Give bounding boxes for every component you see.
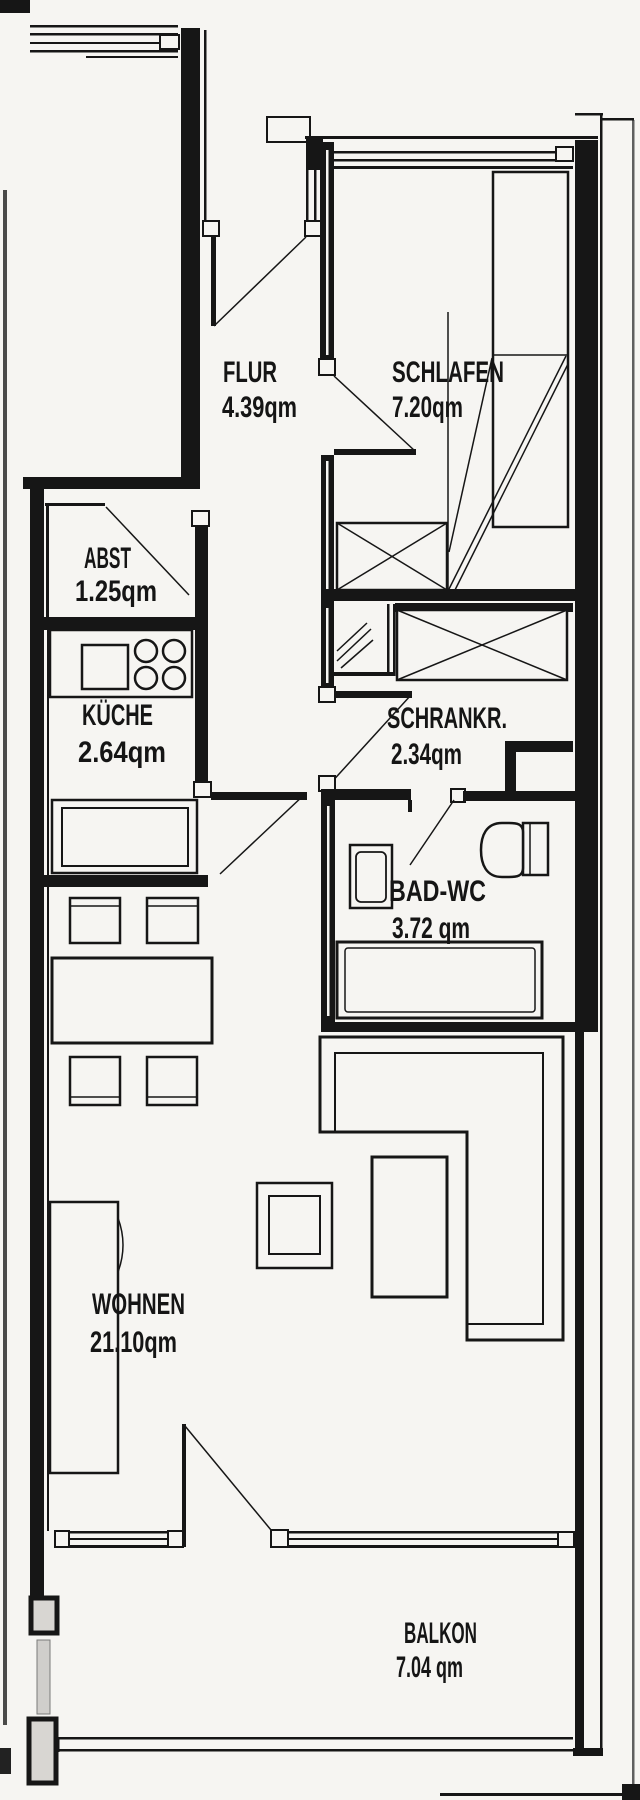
window-wohnen-south-right	[288, 1531, 574, 1548]
door-jamb	[319, 776, 335, 791]
side-table	[372, 1157, 447, 1297]
chest-at-bed-foot	[337, 523, 447, 590]
room-area-abst: 1.25qm	[75, 575, 157, 608]
wall-kitchen-east	[192, 511, 211, 797]
room-area-bad-wc: 3.72 qm	[392, 912, 470, 945]
room-label-flur: FLUR	[223, 356, 277, 389]
wall-abst-south	[30, 617, 208, 630]
kitchen-door-swing	[211, 792, 307, 874]
room-label-bad-wc: BAD-WC	[389, 875, 486, 908]
washbasin	[350, 845, 392, 908]
sink-counter	[52, 800, 197, 873]
entrance-door-swing	[203, 221, 321, 326]
window-schlafen-top	[305, 136, 598, 170]
room-label-kueche: KÜCHE	[82, 699, 153, 732]
bathtub	[337, 942, 542, 1018]
stove	[50, 630, 192, 697]
toilet	[481, 823, 548, 877]
room-label-schrankr: SCHRANKR.	[387, 702, 507, 735]
balcony-railing	[57, 1737, 573, 1752]
room-label-schlafen: SCHLAFEN	[392, 356, 504, 389]
wall-bad-north	[321, 789, 575, 802]
room-area-wohnen: 21.10qm	[90, 1326, 177, 1359]
dining-chair	[70, 898, 120, 943]
wall-corridor-east	[319, 603, 335, 702]
room-label-balkon: BALKON	[404, 1617, 477, 1650]
wall-east-exterior	[573, 113, 603, 1756]
wall-west-exterior	[30, 477, 49, 1600]
wall-bad-west	[321, 800, 335, 1022]
wall-bad-south	[321, 1022, 598, 1032]
room-area-kueche: 2.64qm	[78, 736, 166, 769]
room-area-flur: 4.39qm	[222, 391, 297, 424]
dining-chair	[147, 898, 198, 943]
dining-chair	[147, 1057, 197, 1105]
wall-flur-west	[181, 28, 207, 481]
floor-plan-drawing: FLUR 4.39qm SCHLAFEN 7.20qm ABST 1.25qm …	[0, 0, 640, 1800]
balcony-door-swing	[182, 1424, 288, 1547]
wall-schlafen-south	[321, 589, 598, 612]
room-area-schlafen: 7.20qm	[392, 391, 463, 424]
room-area-balkon: 7.04 qm	[396, 1651, 463, 1684]
window-wohnen-south-left	[55, 1531, 183, 1548]
window-top-left	[30, 25, 179, 58]
room-area-schrankr: 2.34qm	[391, 738, 462, 771]
bad-door-swing	[408, 800, 454, 865]
wall-kitchen-south	[30, 875, 208, 887]
coffee-table	[257, 1183, 332, 1268]
dining-table	[52, 958, 212, 1043]
room-label-abst: ABST	[84, 542, 131, 575]
floor-plan-page: FLUR 4.39qm SCHLAFEN 7.20qm ABST 1.25qm …	[0, 0, 640, 1800]
wall-schlafen-west	[319, 142, 335, 603]
corner-duct	[505, 741, 573, 795]
dining-chair	[70, 1057, 120, 1105]
balcony-left-pillars	[29, 1598, 57, 1783]
ventilation-shaft	[334, 604, 396, 676]
room-label-wohnen: WOHNEN	[92, 1288, 185, 1321]
wardrobe	[397, 610, 567, 680]
